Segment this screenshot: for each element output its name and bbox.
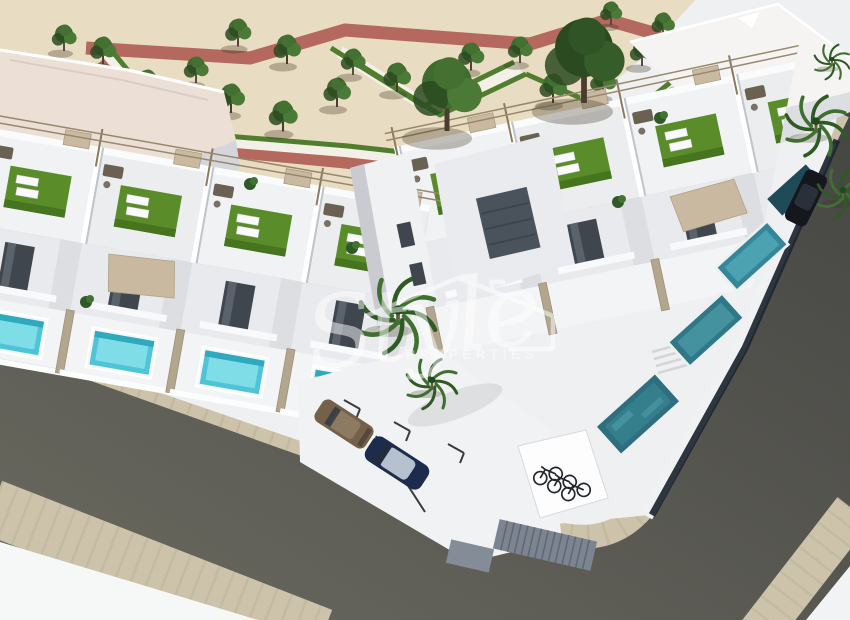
architectural-rendering: Style PROPERTIES [0,0,850,620]
brand-caption: PROPERTIES [406,347,538,362]
scene-svg: Style PROPERTIES [0,0,850,620]
